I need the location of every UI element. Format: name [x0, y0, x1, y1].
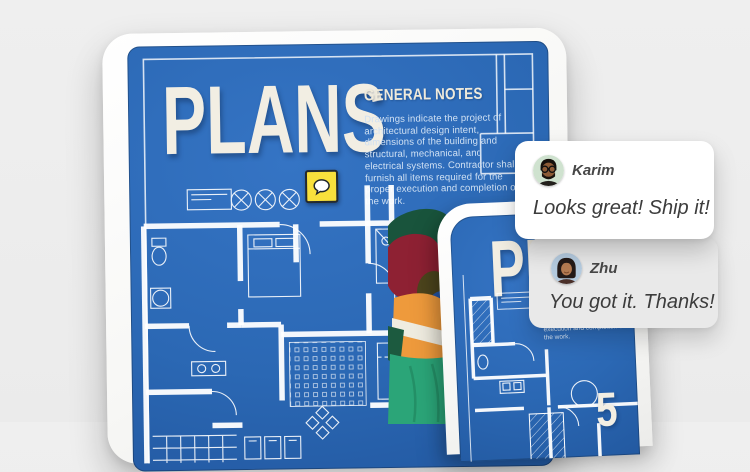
comment-card-zhu[interactable]: Zhu You got it. Thanks!: [529, 237, 718, 328]
sheet-number: 5: [595, 382, 619, 438]
plans-title: PLANS: [162, 69, 387, 169]
avatar: [551, 253, 582, 284]
comment-author: Zhu: [590, 260, 618, 277]
avatar: [533, 155, 564, 186]
background: { "colors": { "background": "#ededed", "…: [0, 0, 750, 422]
general-notes-heading: GENERAL NOTES: [364, 85, 497, 105]
comment-message: Looks great! Ship it!: [533, 197, 710, 220]
comment-message: You got it. Thanks!: [549, 291, 715, 314]
comment-author: Karim: [572, 162, 615, 179]
comment-card-karim[interactable]: Karim Looks great! Ship it!: [515, 141, 714, 239]
